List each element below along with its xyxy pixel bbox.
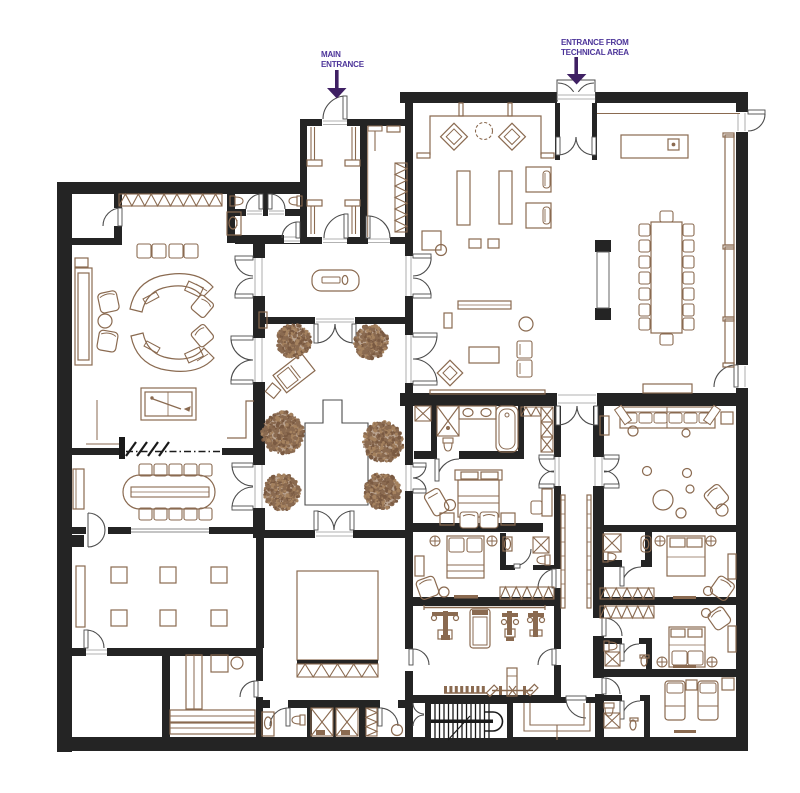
svg-text:ENTRANCE: ENTRANCE — [321, 60, 365, 69]
svg-text:TECHNICAL AREA: TECHNICAL AREA — [561, 48, 629, 57]
svg-text:ENTRANCE FROM: ENTRANCE FROM — [561, 38, 629, 47]
svg-text:MAIN: MAIN — [321, 50, 341, 59]
